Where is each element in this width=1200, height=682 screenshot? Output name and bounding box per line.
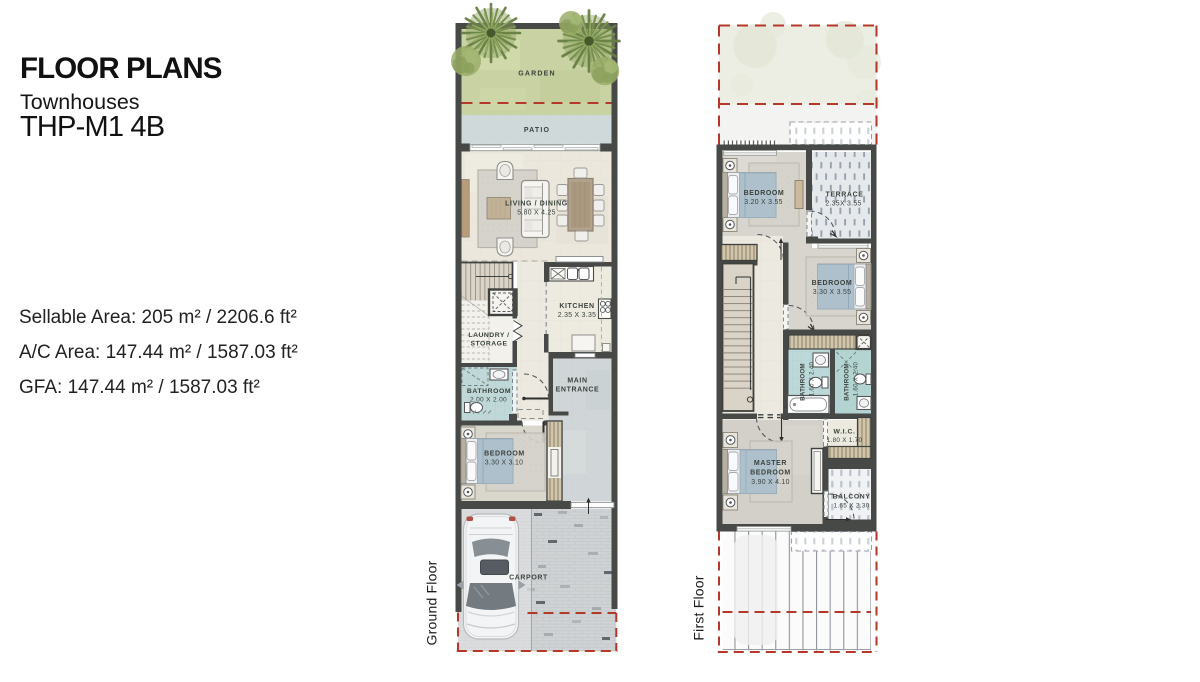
svg-text:PATIO: PATIO	[524, 127, 550, 134]
svg-text:2.00 X 2.00: 2.00 X 2.00	[470, 397, 507, 404]
svg-text:KITCHEN: KITCHEN	[559, 303, 594, 310]
svg-text:3.30 X 3.10: 3.30 X 3.10	[485, 460, 524, 467]
svg-text:MASTER: MASTER	[754, 460, 787, 467]
svg-text:BEDROOM: BEDROOM	[744, 190, 785, 197]
svg-text:3.30 X 3.55: 3.30 X 3.55	[813, 289, 852, 296]
svg-text:BEDROOM: BEDROOM	[750, 470, 791, 477]
svg-text:5.80 X 4.25: 5.80 X 4.25	[517, 210, 556, 217]
svg-text:BATHROOM: BATHROOM	[800, 363, 807, 401]
svg-text:MAIN: MAIN	[567, 377, 587, 384]
svg-text:GARDEN: GARDEN	[518, 71, 556, 78]
svg-text:TERRACE: TERRACE	[825, 192, 863, 199]
svg-text:CARPORT: CARPORT	[509, 575, 548, 582]
svg-text:LAUNDRY /: LAUNDRY /	[468, 332, 509, 339]
svg-text:BATHROOM: BATHROOM	[467, 388, 511, 395]
svg-text:BALCONY: BALCONY	[833, 494, 871, 501]
svg-text:2.35 X 3.35: 2.35 X 3.35	[558, 312, 597, 319]
svg-text:1.60 X 2.40: 1.60 X 2.40	[853, 361, 860, 396]
svg-text:BEDROOM: BEDROOM	[812, 280, 853, 287]
svg-text:3.90 X 4.10: 3.90 X 4.10	[751, 479, 790, 486]
svg-text:BATHROOM: BATHROOM	[844, 363, 851, 401]
svg-text:W.I.C.: W.I.C.	[833, 428, 855, 435]
svg-text:Ground Floor: Ground Floor	[424, 560, 440, 645]
svg-text:ENTRANCE: ENTRANCE	[556, 386, 600, 393]
svg-text:1.80 X 1.70: 1.80 X 1.70	[827, 437, 863, 444]
svg-text:STORAGE: STORAGE	[471, 341, 508, 348]
svg-text:1.60 X 2.40: 1.60 X 2.40	[809, 361, 816, 396]
svg-text:3.20 X 3.55: 3.20 X 3.55	[744, 199, 783, 206]
svg-text:First Floor: First Floor	[691, 575, 707, 640]
svg-text:LIVING / DINING: LIVING / DINING	[505, 201, 568, 208]
svg-text:2.35X 3.55: 2.35X 3.55	[825, 201, 861, 208]
svg-text:BEDROOM: BEDROOM	[484, 451, 525, 458]
